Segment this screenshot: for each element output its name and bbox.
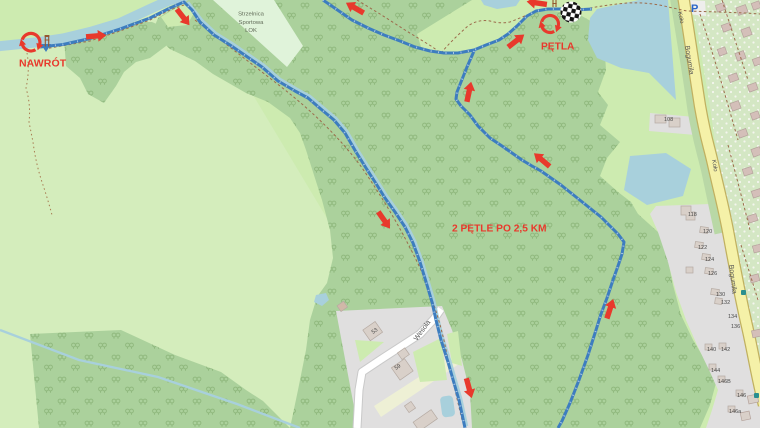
svg-text:118: 118 [688,212,697,218]
svg-text:NAWRÓT: NAWRÓT [19,57,67,70]
svg-text:122: 122 [698,245,707,251]
svg-text:134: 134 [728,314,737,320]
svg-text:130: 130 [716,292,725,298]
svg-text:146: 146 [737,393,746,399]
svg-text:108: 108 [664,117,673,123]
svg-text:146a: 146a [729,409,742,415]
svg-text:2 PĘTLE PO 2,5 KM: 2 PĘTLE PO 2,5 KM [452,224,547,235]
svg-text:140: 140 [707,347,716,353]
svg-text:144: 144 [711,368,720,374]
svg-text:LOK: LOK [245,28,257,34]
svg-text:120: 120 [703,229,712,235]
svg-text:PĘTLA: PĘTLA [541,42,575,53]
svg-text:136: 136 [731,324,740,330]
svg-text:142: 142 [721,347,730,353]
svg-text:132: 132 [721,300,730,306]
svg-text:126: 126 [708,271,717,277]
svg-text:146B: 146B [718,379,731,385]
svg-text:124: 124 [705,257,714,263]
svg-text:P: P [691,3,698,15]
svg-text:Strzelnica: Strzelnica [238,12,265,18]
svg-text:Sportowa: Sportowa [239,20,265,26]
